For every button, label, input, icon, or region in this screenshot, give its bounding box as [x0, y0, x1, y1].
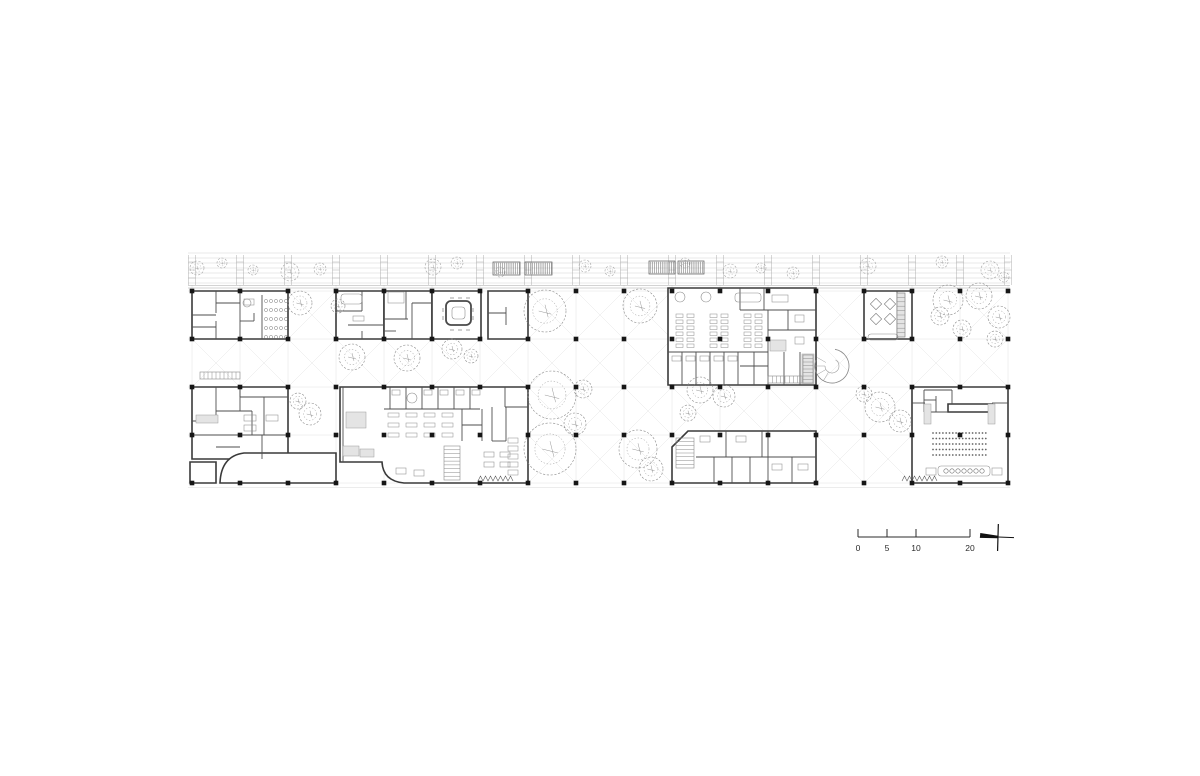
- building-blocks: [190, 288, 1008, 483]
- column-dot: [574, 481, 579, 486]
- seat-dot: [982, 443, 984, 445]
- tree-branch: [686, 413, 691, 414]
- seat-dot: [968, 443, 970, 445]
- seat-dot: [949, 454, 951, 456]
- seat-dot: [952, 443, 954, 445]
- seat-dot: [955, 443, 957, 445]
- tree-branch: [696, 390, 704, 392]
- tree: [248, 265, 258, 275]
- seat-dot: [968, 454, 970, 456]
- gray-fixture: [988, 404, 995, 424]
- seat-dot: [942, 449, 944, 451]
- tree-inner: [285, 267, 295, 277]
- column-dot: [862, 289, 867, 294]
- seat-dot: [985, 438, 987, 440]
- tree-branch: [499, 272, 502, 273]
- tree-branch: [583, 266, 587, 267]
- tree-branch: [688, 411, 689, 416]
- seat-dot: [962, 443, 964, 445]
- seat-dot: [939, 432, 941, 434]
- tree: [281, 263, 299, 281]
- tree: [639, 457, 663, 481]
- tree-branch: [298, 399, 299, 404]
- seat-dot: [952, 438, 954, 440]
- tree-branch: [987, 270, 992, 271]
- block-wall: [668, 288, 816, 385]
- seat-dot: [985, 432, 987, 434]
- seat-dot: [952, 454, 954, 456]
- column-dot: [286, 481, 291, 486]
- seat-dot: [965, 438, 967, 440]
- seat-dot: [939, 454, 941, 456]
- column-dot: [670, 337, 675, 342]
- block-wall: [336, 291, 384, 339]
- tree-branch: [296, 401, 301, 402]
- tree: [999, 272, 1009, 282]
- gray-fixture: [924, 404, 931, 424]
- tree-branch: [550, 441, 554, 457]
- spiral-step: [817, 358, 826, 363]
- gray-fixture: [196, 415, 218, 423]
- column-dot: [382, 433, 387, 438]
- tree-branch: [975, 296, 983, 298]
- seat-dot: [949, 432, 951, 434]
- seat-dot: [945, 449, 947, 451]
- tree-branch: [471, 354, 472, 358]
- column-dot: [238, 337, 243, 342]
- seat-dot: [942, 432, 944, 434]
- seat-dot: [939, 443, 941, 445]
- seat-dot: [959, 438, 961, 440]
- block-wall: [948, 404, 992, 412]
- column-dot: [238, 433, 243, 438]
- seat-dot: [932, 454, 934, 456]
- tree-branch: [609, 271, 612, 272]
- tree-inner: [535, 434, 565, 464]
- column-dot: [286, 289, 291, 294]
- tree-branch: [572, 424, 579, 426]
- tree: [865, 392, 895, 422]
- column-dot: [622, 433, 627, 438]
- seat-dot: [972, 454, 974, 456]
- seat-dot: [955, 438, 957, 440]
- seat-dot: [959, 443, 961, 445]
- tree-branch: [580, 389, 585, 390]
- column-dot: [286, 385, 291, 390]
- column-dot: [670, 433, 675, 438]
- tree-branch: [452, 346, 454, 352]
- tree-branch: [585, 264, 586, 268]
- seat-dot: [939, 438, 941, 440]
- column-dot: [238, 385, 243, 390]
- seat-dot: [972, 449, 974, 451]
- tree-branch: [545, 305, 548, 318]
- seat-dot: [985, 454, 987, 456]
- north-arrow-east-blade: [998, 536, 1014, 538]
- column-dot: [862, 481, 867, 486]
- seat-dot: [955, 449, 957, 451]
- column-dot: [430, 481, 435, 486]
- column-dot: [190, 481, 195, 486]
- seat-dot: [985, 449, 987, 451]
- tree-branch: [469, 356, 473, 357]
- seat-dot: [932, 438, 934, 440]
- tree-inner: [399, 350, 414, 365]
- seat-dot: [952, 432, 954, 434]
- tree-inner: [578, 384, 588, 394]
- seat-dot: [965, 443, 967, 445]
- seat-dot: [959, 454, 961, 456]
- block-wall: [190, 462, 216, 483]
- seat-dot: [975, 432, 977, 434]
- tree-branch: [640, 301, 643, 311]
- seat-dot: [972, 432, 974, 434]
- seat-dot: [982, 454, 984, 456]
- tree-inner: [467, 352, 475, 360]
- tree-branch: [876, 407, 885, 409]
- tree-branch: [700, 386, 702, 394]
- column-dot: [574, 385, 579, 390]
- seat-dot: [975, 438, 977, 440]
- top-band: [188, 253, 1012, 288]
- tree-inner: [533, 299, 557, 323]
- tree: [860, 258, 876, 274]
- tree-branch: [728, 271, 732, 272]
- column-dot: [622, 289, 627, 294]
- column-dot: [334, 433, 339, 438]
- tree: [394, 345, 420, 371]
- tree: [425, 259, 441, 275]
- column-dot: [622, 385, 627, 390]
- column-dot: [430, 433, 435, 438]
- seat-dot: [965, 454, 967, 456]
- tree: [290, 393, 306, 409]
- seat-dot: [975, 449, 977, 451]
- seat-dot: [939, 449, 941, 451]
- seat-dot: [935, 449, 937, 451]
- tree-branch: [937, 316, 942, 317]
- column-dot: [814, 289, 819, 294]
- tree: [981, 261, 999, 279]
- tree-inner: [344, 349, 359, 364]
- column-dot: [190, 289, 195, 294]
- column-dot: [910, 481, 915, 486]
- scale-bar: 051020: [856, 529, 975, 553]
- seat-dot: [978, 449, 980, 451]
- tree-branch: [942, 260, 943, 264]
- column-dot: [478, 337, 483, 342]
- column-dot: [286, 433, 291, 438]
- tree-branch: [868, 264, 869, 269]
- tree-inner: [293, 396, 302, 405]
- tree-inner: [957, 324, 967, 334]
- spiral-step: [824, 372, 829, 381]
- column-dot: [286, 337, 291, 342]
- seat-dot: [945, 432, 947, 434]
- tree: [299, 403, 321, 425]
- seat-dot: [935, 443, 937, 445]
- tree-branch: [253, 269, 254, 272]
- seat-dot: [978, 443, 980, 445]
- seat-dot: [949, 438, 951, 440]
- block-wall: [384, 291, 432, 339]
- seat-dot: [942, 454, 944, 456]
- tree-branch: [632, 449, 643, 452]
- seat-dot: [955, 432, 957, 434]
- column-dot: [766, 433, 771, 438]
- tree-branch: [730, 269, 731, 273]
- seat-dot: [982, 432, 984, 434]
- tree-branch: [252, 270, 255, 271]
- column-dot: [718, 433, 723, 438]
- tree-branch: [310, 411, 312, 418]
- column-dot: [718, 481, 723, 486]
- seat-dot: [962, 438, 964, 440]
- column-dot: [478, 481, 483, 486]
- tree-inner: [630, 296, 650, 316]
- seat-dot: [978, 454, 980, 456]
- column-dot: [334, 337, 339, 342]
- column-dot: [958, 385, 963, 390]
- seat-dot: [965, 449, 967, 451]
- column-dot: [526, 481, 531, 486]
- column-dot: [814, 433, 819, 438]
- column-dot: [478, 433, 483, 438]
- tree: [713, 385, 735, 407]
- column-dot: [526, 433, 531, 438]
- north-arrow-west-blade: [980, 533, 998, 539]
- tree-branch: [407, 354, 409, 362]
- seat-dot: [935, 454, 937, 456]
- tree-branch: [651, 465, 653, 472]
- floor-plan-svg: 051020: [0, 0, 1200, 776]
- column-dot: [430, 337, 435, 342]
- seat-dot: [935, 438, 937, 440]
- tree: [464, 349, 478, 363]
- tree-branch: [545, 395, 559, 399]
- tree-branch: [948, 296, 950, 305]
- column-dot: [478, 289, 483, 294]
- tree-inner: [582, 263, 589, 270]
- tree-branch: [638, 443, 641, 454]
- seat-dot: [982, 449, 984, 451]
- tree-inner: [683, 408, 692, 417]
- column-dot: [190, 385, 195, 390]
- scale-label: 0: [856, 543, 861, 553]
- column-dot: [718, 385, 723, 390]
- column-dot: [958, 481, 963, 486]
- column-dot: [766, 385, 771, 390]
- tree-branch: [307, 414, 314, 416]
- scale-label: 5: [885, 543, 890, 553]
- tree-inner: [985, 265, 995, 275]
- column-dot: [190, 337, 195, 342]
- column-dot: [238, 481, 243, 486]
- tree-branch: [403, 358, 411, 360]
- column-dot: [382, 337, 387, 342]
- tree-branch: [721, 396, 728, 398]
- spiral-step: [817, 370, 826, 375]
- tree-inner: [497, 269, 503, 275]
- column-dot: [814, 385, 819, 390]
- tree-inner: [871, 398, 888, 415]
- tree-branch: [940, 313, 941, 318]
- column-dot: [670, 481, 675, 486]
- column-dot: [382, 289, 387, 294]
- seat-dot: [932, 449, 934, 451]
- column-dot: [1006, 385, 1011, 390]
- north-arrow: [979, 522, 1015, 552]
- tree: [931, 307, 949, 325]
- column-dot: [910, 337, 915, 342]
- seat-dot: [975, 443, 977, 445]
- tree-inner: [538, 381, 566, 409]
- column-dot: [862, 337, 867, 342]
- tree: [524, 290, 566, 332]
- tree: [442, 339, 462, 359]
- seat-dot: [985, 443, 987, 445]
- tree-branch: [724, 393, 726, 400]
- tree: [680, 405, 696, 421]
- seat-dot: [945, 438, 947, 440]
- column-dot: [958, 289, 963, 294]
- tree-branch: [999, 314, 1001, 321]
- tree: [889, 410, 911, 432]
- tree: [579, 260, 591, 272]
- column-dot: [910, 433, 915, 438]
- column-dot: [910, 289, 915, 294]
- tree-inner: [304, 408, 317, 421]
- tree-inner: [993, 311, 1006, 324]
- column-dot: [670, 385, 675, 390]
- seat-dot: [942, 443, 944, 445]
- seat-dot: [972, 438, 974, 440]
- column-dot: [910, 385, 915, 390]
- column-dot: [478, 385, 483, 390]
- column-dot: [670, 289, 675, 294]
- column-dot: [382, 385, 387, 390]
- column-dot: [526, 385, 531, 390]
- tree: [524, 423, 576, 475]
- column-dot: [334, 289, 339, 294]
- seat-dot: [962, 449, 964, 451]
- scale-label: 10: [911, 543, 921, 553]
- gray-fixture: [346, 412, 366, 428]
- column-dot: [238, 289, 243, 294]
- seat-dot: [935, 432, 937, 434]
- tree: [605, 266, 615, 276]
- column-dot: [958, 433, 963, 438]
- seat-dot: [945, 454, 947, 456]
- tree-inner: [939, 291, 956, 308]
- tree-branch: [1003, 277, 1006, 278]
- tree-branch: [320, 267, 321, 271]
- column-dot: [958, 337, 963, 342]
- column-dot: [622, 337, 627, 342]
- tree: [988, 306, 1010, 328]
- gray-fixture: [360, 449, 374, 457]
- column-dot: [766, 337, 771, 342]
- seat-dot: [955, 454, 957, 456]
- column-dot: [1006, 433, 1011, 438]
- tree-inner: [894, 415, 907, 428]
- floor-plan-page: 051020: [0, 0, 1200, 776]
- tree: [564, 413, 586, 435]
- tree-branch: [352, 353, 354, 361]
- column-dot: [814, 481, 819, 486]
- seat-dot: [959, 449, 961, 451]
- seat-dot: [978, 438, 980, 440]
- tree: [339, 344, 365, 370]
- column-dot: [382, 481, 387, 486]
- seat-dot: [932, 443, 934, 445]
- seat-dot: [968, 438, 970, 440]
- block-wall: [220, 453, 336, 483]
- tree-branch: [944, 300, 953, 302]
- block-wall: [488, 291, 528, 339]
- column-dot: [526, 289, 531, 294]
- tree-branch: [996, 317, 1003, 319]
- column-dot: [430, 289, 435, 294]
- column-dot: [766, 481, 771, 486]
- seat-dot: [978, 432, 980, 434]
- column-dot: [334, 385, 339, 390]
- tree-inner: [971, 288, 986, 303]
- column-dot: [430, 385, 435, 390]
- tree: [528, 371, 576, 419]
- column-dot: [862, 433, 867, 438]
- tree-inner: [644, 462, 658, 476]
- tree: [723, 264, 737, 278]
- seat-dot: [945, 443, 947, 445]
- tree-branch: [647, 469, 654, 471]
- column-dot: [766, 289, 771, 294]
- tree-branch: [635, 306, 645, 309]
- seat-dot: [942, 438, 944, 440]
- tree-branch: [552, 388, 556, 402]
- column-dot: [718, 289, 723, 294]
- block-wall: [432, 291, 481, 339]
- column-dot: [526, 337, 531, 342]
- tree-inner: [317, 266, 324, 273]
- column-dot: [718, 337, 723, 342]
- column-dot: [622, 481, 627, 486]
- tree-branch: [979, 292, 981, 300]
- seat-dot: [972, 443, 974, 445]
- tree-branch: [542, 449, 558, 453]
- column-dot: [190, 433, 195, 438]
- seat-dot: [968, 449, 970, 451]
- seat-dot: [952, 449, 954, 451]
- tree-inner: [718, 390, 731, 403]
- tree-inner: [446, 343, 458, 355]
- seat-dot: [949, 443, 951, 445]
- gray-fixture: [343, 446, 359, 456]
- seat-dot: [962, 454, 964, 456]
- seat-dot: [968, 432, 970, 434]
- tree-branch: [610, 270, 611, 273]
- column-dot: [1006, 337, 1011, 342]
- seat-dot: [965, 432, 967, 434]
- tree-branch: [866, 266, 871, 267]
- column-dot: [574, 289, 579, 294]
- tree-branch: [962, 326, 963, 331]
- gray-fixture: [770, 340, 786, 351]
- tree: [953, 320, 971, 338]
- tree: [966, 283, 992, 309]
- column-dot: [1006, 481, 1011, 486]
- tree-branch: [318, 269, 322, 270]
